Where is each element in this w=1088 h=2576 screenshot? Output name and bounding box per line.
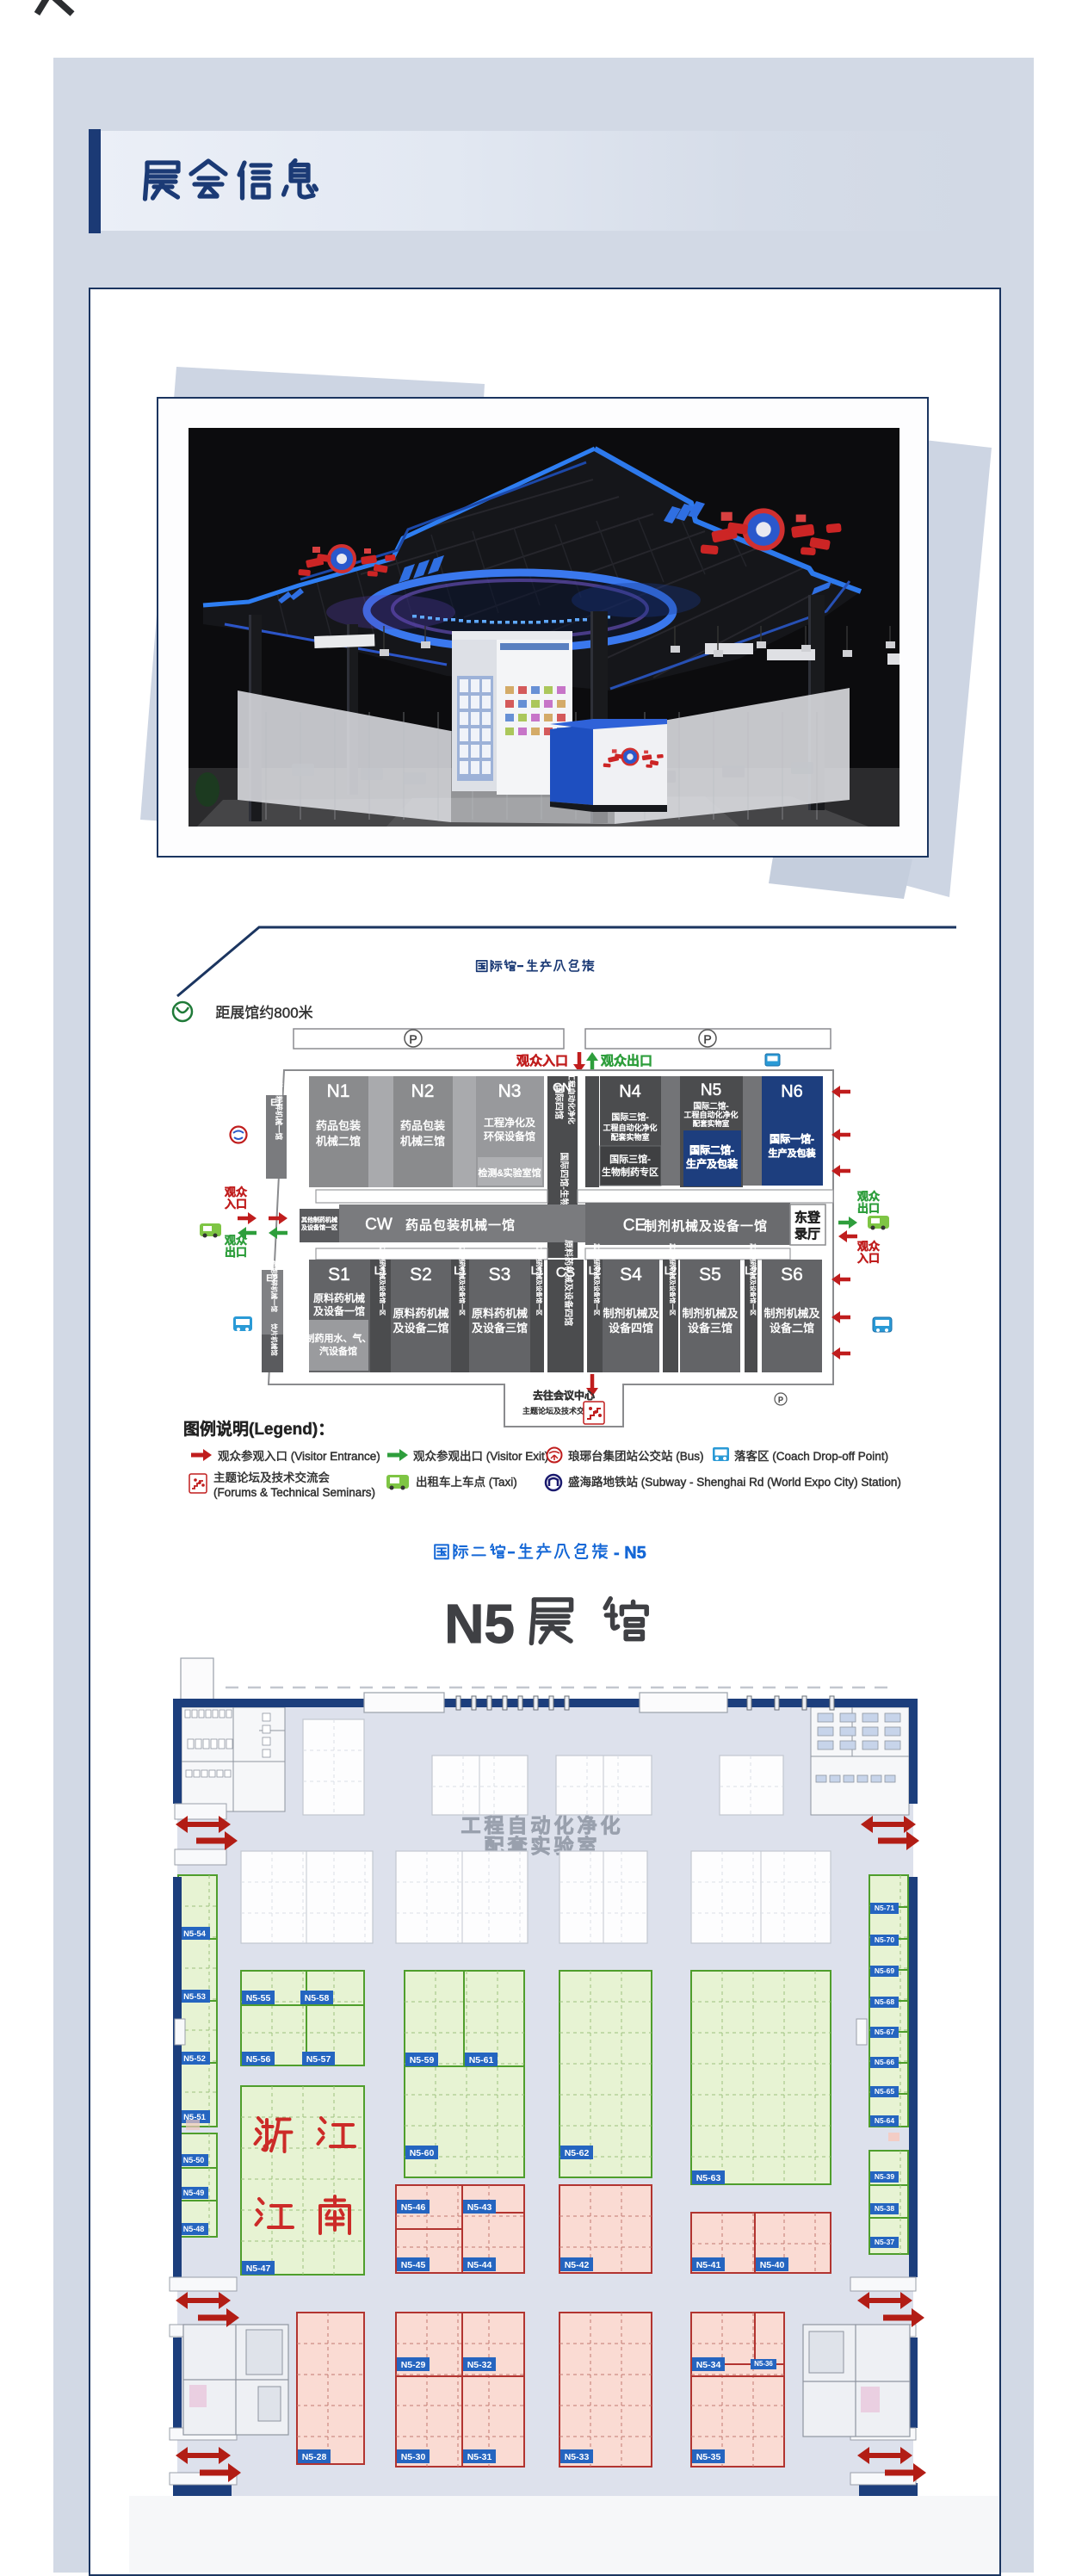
svg-text:其他制药机械及设备馆一区: 其他制药机械及设备馆一区 bbox=[379, 1243, 386, 1316]
svg-text:主题论坛及技术交流会: 主题论坛及技术交流会 bbox=[213, 1471, 330, 1484]
svg-text:N5-29: N5-29 bbox=[401, 2360, 426, 2370]
svg-text:配套实物室: 配套实物室 bbox=[610, 1132, 649, 1142]
svg-text:机械二馆: 机械二馆 bbox=[316, 1135, 361, 1148]
svg-text:N5-62: N5-62 bbox=[565, 2148, 590, 2158]
svg-text:药品包装: 药品包装 bbox=[316, 1119, 361, 1132]
svg-text:N5: N5 bbox=[444, 1593, 515, 1653]
svg-text:其他制药机械及设备馆一区: 其他制药机械及设备馆一区 bbox=[750, 1243, 757, 1316]
svg-text:CW: CW bbox=[365, 1216, 393, 1234]
svg-text:P: P bbox=[409, 1032, 417, 1046]
svg-text:制剂机械及: 制剂机械及 bbox=[682, 1307, 738, 1320]
svg-text:观众参观入口 (Visitor Entrance): 观众参观入口 (Visitor Entrance) bbox=[218, 1449, 380, 1463]
svg-text:N5-41: N5-41 bbox=[696, 2260, 721, 2270]
svg-text:N5-58: N5-58 bbox=[305, 1993, 330, 2003]
svg-text:N5-43: N5-43 bbox=[467, 2202, 492, 2213]
svg-text:N5-45: N5-45 bbox=[401, 2260, 426, 2270]
svg-text:N5-47: N5-47 bbox=[246, 2263, 271, 2274]
svg-text:N5-71: N5-71 bbox=[875, 1904, 894, 1912]
svg-text:N5-36: N5-36 bbox=[754, 2360, 773, 2368]
svg-text:S4: S4 bbox=[620, 1265, 642, 1285]
svg-text:N5-40: N5-40 bbox=[760, 2260, 785, 2270]
svg-text:国际四馆: 国际四馆 bbox=[553, 1085, 565, 1119]
svg-text:N5-50: N5-50 bbox=[183, 2156, 205, 2164]
svg-text:其他制药机械及设备馆一区: 其他制药机械及设备馆一区 bbox=[535, 1243, 543, 1316]
svg-text:CE: CE bbox=[623, 1217, 646, 1235]
svg-text:N5-34: N5-34 bbox=[696, 2360, 721, 2370]
svg-text:N5-52: N5-52 bbox=[183, 2054, 206, 2064]
svg-text:N3: N3 bbox=[498, 1081, 522, 1101]
svg-text:S2: S2 bbox=[410, 1265, 432, 1285]
svg-text:药品包装机械一馆: 药品包装机械一馆 bbox=[405, 1218, 516, 1233]
svg-text:N5-64: N5-64 bbox=[875, 2116, 894, 2125]
svg-text:生物制药专区: 生物制药专区 bbox=[602, 1166, 658, 1178]
svg-text:琅琊台集团站公交站 (Bus): 琅琊台集团站公交站 (Bus) bbox=[568, 1449, 704, 1463]
svg-text:S6: S6 bbox=[781, 1265, 803, 1285]
svg-text:观众出口: 观众出口 bbox=[601, 1053, 652, 1068]
svg-text:原料药机械及设备四馆: 原料药机械及设备四馆 bbox=[563, 1240, 574, 1326]
svg-text:图例说明(Legend)：: 图例说明(Legend)： bbox=[183, 1419, 334, 1439]
svg-text:N2: N2 bbox=[411, 1081, 435, 1101]
svg-text:入口: 入口 bbox=[225, 1198, 247, 1211]
svg-text:N5-57: N5-57 bbox=[306, 2054, 331, 2065]
svg-text:观众: 观众 bbox=[225, 1234, 247, 1247]
svg-text:N5-68: N5-68 bbox=[875, 1997, 894, 2006]
svg-text:N5-48: N5-48 bbox=[183, 2225, 205, 2233]
svg-text:落客区 (Coach Drop-off Point): 落客区 (Coach Drop-off Point) bbox=[734, 1449, 888, 1463]
svg-text:S5: S5 bbox=[699, 1265, 721, 1285]
svg-text:N5-53: N5-53 bbox=[183, 1992, 206, 2002]
svg-text:N6: N6 bbox=[781, 1082, 803, 1101]
svg-text:N1: N1 bbox=[327, 1081, 350, 1101]
svg-text:P: P bbox=[703, 1032, 711, 1046]
svg-text:配套实物室: 配套实物室 bbox=[693, 1119, 730, 1128]
svg-text:其他制药机械: 其他制药机械 bbox=[301, 1216, 337, 1223]
svg-text:工程自动化净化: 工程自动化净化 bbox=[567, 1073, 576, 1124]
svg-text:其他制药机械及设备馆一区: 其他制药机械及设备馆一区 bbox=[459, 1243, 467, 1316]
svg-text:N4: N4 bbox=[619, 1082, 641, 1101]
svg-text:N5-49: N5-49 bbox=[183, 2189, 205, 2197]
svg-text:观众: 观众 bbox=[857, 1240, 880, 1253]
svg-text:设备二馆: 设备二馆 bbox=[770, 1322, 814, 1334]
svg-text:国际三馆-: 国际三馆- bbox=[609, 1153, 651, 1165]
svg-text:环保设备馆: 环保设备馆 bbox=[484, 1130, 535, 1142]
svg-text:东登: 东登 bbox=[794, 1210, 821, 1225]
svg-text:入口: 入口 bbox=[857, 1252, 880, 1265]
svg-text:机械三馆: 机械三馆 bbox=[400, 1135, 445, 1148]
svg-text:N5-70: N5-70 bbox=[875, 1935, 894, 1944]
svg-text:录厅: 录厅 bbox=[794, 1227, 820, 1242]
svg-text:N5-69: N5-69 bbox=[875, 1966, 894, 1975]
svg-text:N5-60: N5-60 bbox=[410, 2148, 435, 2158]
svg-text:N5-39: N5-39 bbox=[875, 2172, 894, 2181]
svg-text:工程净化及: 工程净化及 bbox=[484, 1116, 535, 1129]
svg-text:其他制药机械及设备馆一区: 其他制药机械及设备馆一区 bbox=[593, 1243, 601, 1316]
svg-text:原料药机械: 原料药机械 bbox=[313, 1291, 365, 1304]
svg-text:距展馆约800米: 距展馆约800米 bbox=[215, 1005, 312, 1021]
svg-text:设备三馆: 设备三馆 bbox=[688, 1322, 733, 1334]
svg-text:原料药机械: 原料药机械 bbox=[472, 1307, 528, 1320]
svg-text:制剂机械及: 制剂机械及 bbox=[763, 1307, 819, 1320]
svg-text:检测&实验室馆: 检测&实验室馆 bbox=[478, 1167, 541, 1179]
svg-text:S1: S1 bbox=[328, 1265, 350, 1285]
svg-text:生产及包装: 生产及包装 bbox=[769, 1147, 816, 1159]
svg-text:生产及包装: 生产及包装 bbox=[686, 1157, 738, 1170]
svg-text:N5-33: N5-33 bbox=[565, 2452, 590, 2462]
svg-text:N5-56: N5-56 bbox=[246, 2054, 271, 2065]
svg-text:N5-42: N5-42 bbox=[565, 2260, 590, 2270]
svg-text:N5-37: N5-37 bbox=[875, 2238, 894, 2246]
svg-text:N5-32: N5-32 bbox=[467, 2360, 492, 2370]
svg-text:制剂机械及设备一馆: 制剂机械及设备一馆 bbox=[644, 1219, 768, 1234]
svg-text:药用粉碎机械一馆: 药用粉碎机械一馆 bbox=[275, 1081, 283, 1140]
svg-text:盛海路地铁站 (Subway - Shenghai Rd (: 盛海路地铁站 (Subway - Shenghai Rd (World Expo… bbox=[568, 1476, 901, 1489]
svg-text:S3: S3 bbox=[489, 1265, 511, 1285]
svg-text:N5-63: N5-63 bbox=[696, 2173, 721, 2183]
svg-text:国际三馆-: 国际三馆- bbox=[611, 1112, 648, 1123]
svg-text:国际一馆-: 国际一馆- bbox=[770, 1132, 814, 1145]
svg-text:N5-67: N5-67 bbox=[875, 2028, 894, 2036]
svg-text:及设备三馆: 及设备三馆 bbox=[472, 1322, 528, 1334]
svg-text:及设备二馆: 及设备二馆 bbox=[393, 1322, 448, 1334]
svg-text:设备四馆: 设备四馆 bbox=[609, 1322, 653, 1334]
svg-text:及设备一馆: 及设备一馆 bbox=[313, 1304, 365, 1317]
svg-text:药品包装: 药品包装 bbox=[400, 1119, 445, 1132]
svg-text:制药用水、气、: 制药用水、气、 bbox=[306, 1332, 372, 1344]
svg-text:国际二馆-: 国际二馆- bbox=[689, 1143, 734, 1156]
svg-text:观众: 观众 bbox=[857, 1190, 880, 1203]
svg-text:饮片机械馆: 饮片机械馆 bbox=[270, 1323, 279, 1356]
svg-text:及设备馆一区: 及设备馆一区 bbox=[301, 1223, 337, 1231]
svg-text:工程自动化净化: 工程自动化净化 bbox=[461, 1814, 624, 1836]
svg-text:N5-46: N5-46 bbox=[401, 2202, 426, 2213]
svg-text:- N5: - N5 bbox=[614, 1544, 646, 1563]
svg-text:N5-44: N5-44 bbox=[467, 2260, 492, 2270]
svg-text:N5-55: N5-55 bbox=[246, 1993, 271, 2003]
svg-text:N5-65: N5-65 bbox=[875, 2087, 894, 2096]
svg-text:P: P bbox=[778, 1396, 783, 1404]
svg-text:观众: 观众 bbox=[225, 1186, 247, 1198]
svg-text:N5-35: N5-35 bbox=[696, 2452, 721, 2462]
svg-text:N5-66: N5-66 bbox=[875, 2058, 894, 2066]
svg-text:N5-28: N5-28 bbox=[302, 2452, 327, 2462]
svg-text:观众参观出口 (Visitor Exit): 观众参观出口 (Visitor Exit) bbox=[413, 1449, 548, 1463]
svg-text:出口: 出口 bbox=[857, 1202, 880, 1215]
svg-text:N5-54: N5-54 bbox=[183, 1929, 207, 1939]
svg-text:原料药机械: 原料药机械 bbox=[393, 1307, 448, 1320]
svg-text:出租车上车点 (Taxi): 出租车上车点 (Taxi) bbox=[416, 1475, 517, 1489]
svg-text:出口: 出口 bbox=[225, 1246, 247, 1259]
svg-text:N5-30: N5-30 bbox=[401, 2452, 426, 2462]
svg-text:N5: N5 bbox=[701, 1081, 721, 1099]
svg-text:工程自动化净化: 工程自动化净化 bbox=[603, 1123, 657, 1132]
svg-text:药用粉碎机械一馆: 药用粉碎机械一馆 bbox=[270, 1260, 279, 1312]
svg-text:N5-31: N5-31 bbox=[467, 2452, 492, 2462]
svg-text:工程自动化净化: 工程自动化净化 bbox=[683, 1110, 738, 1119]
svg-text:观众入口: 观众入口 bbox=[516, 1053, 568, 1068]
svg-text:(Forums & Technical Seminars): (Forums & Technical Seminars) bbox=[213, 1486, 375, 1499]
svg-text:去往会议中心: 去往会议中心 bbox=[533, 1389, 595, 1402]
svg-text:N5-38: N5-38 bbox=[875, 2204, 894, 2213]
svg-text:N5-61: N5-61 bbox=[469, 2055, 494, 2065]
svg-text:其他制药机械及设备馆一区: 其他制药机械及设备馆一区 bbox=[669, 1243, 677, 1316]
svg-text:制剂机械及: 制剂机械及 bbox=[603, 1307, 658, 1320]
svg-text:汽设备馆: 汽设备馆 bbox=[319, 1345, 357, 1357]
svg-text:N5-59: N5-59 bbox=[410, 2055, 435, 2065]
